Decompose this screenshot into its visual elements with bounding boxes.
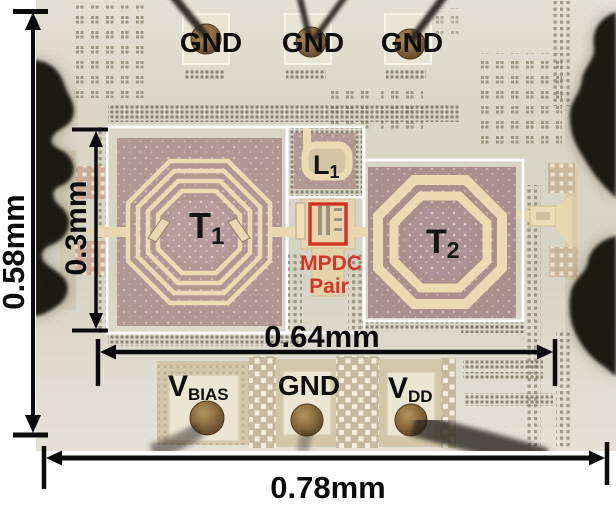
pad-labels-top: GND GND GND	[180, 27, 443, 58]
mpdc-label-line2: Pair	[309, 275, 349, 298]
core-height-label: 0.3mm	[60, 180, 93, 275]
die-micrograph-figure: GND GND GND T1 T2 L1 MPDC Pair VBIAS GND…	[0, 0, 616, 505]
gnd-label-1: GND	[180, 27, 242, 58]
gnd-bottom-label: GND	[278, 370, 340, 401]
gnd-label-2: GND	[282, 27, 344, 58]
die-height-label: 0.58mm	[0, 194, 31, 309]
bond-ball	[291, 404, 323, 436]
die-width-label: 0.78mm	[270, 470, 385, 505]
mpdc-label-line1: MPDC	[300, 252, 362, 275]
gnd-label-3: GND	[381, 27, 443, 58]
arrowhead-right	[589, 451, 605, 466]
core-width-label: 0.64mm	[264, 319, 379, 354]
arrowhead-left	[46, 451, 62, 466]
